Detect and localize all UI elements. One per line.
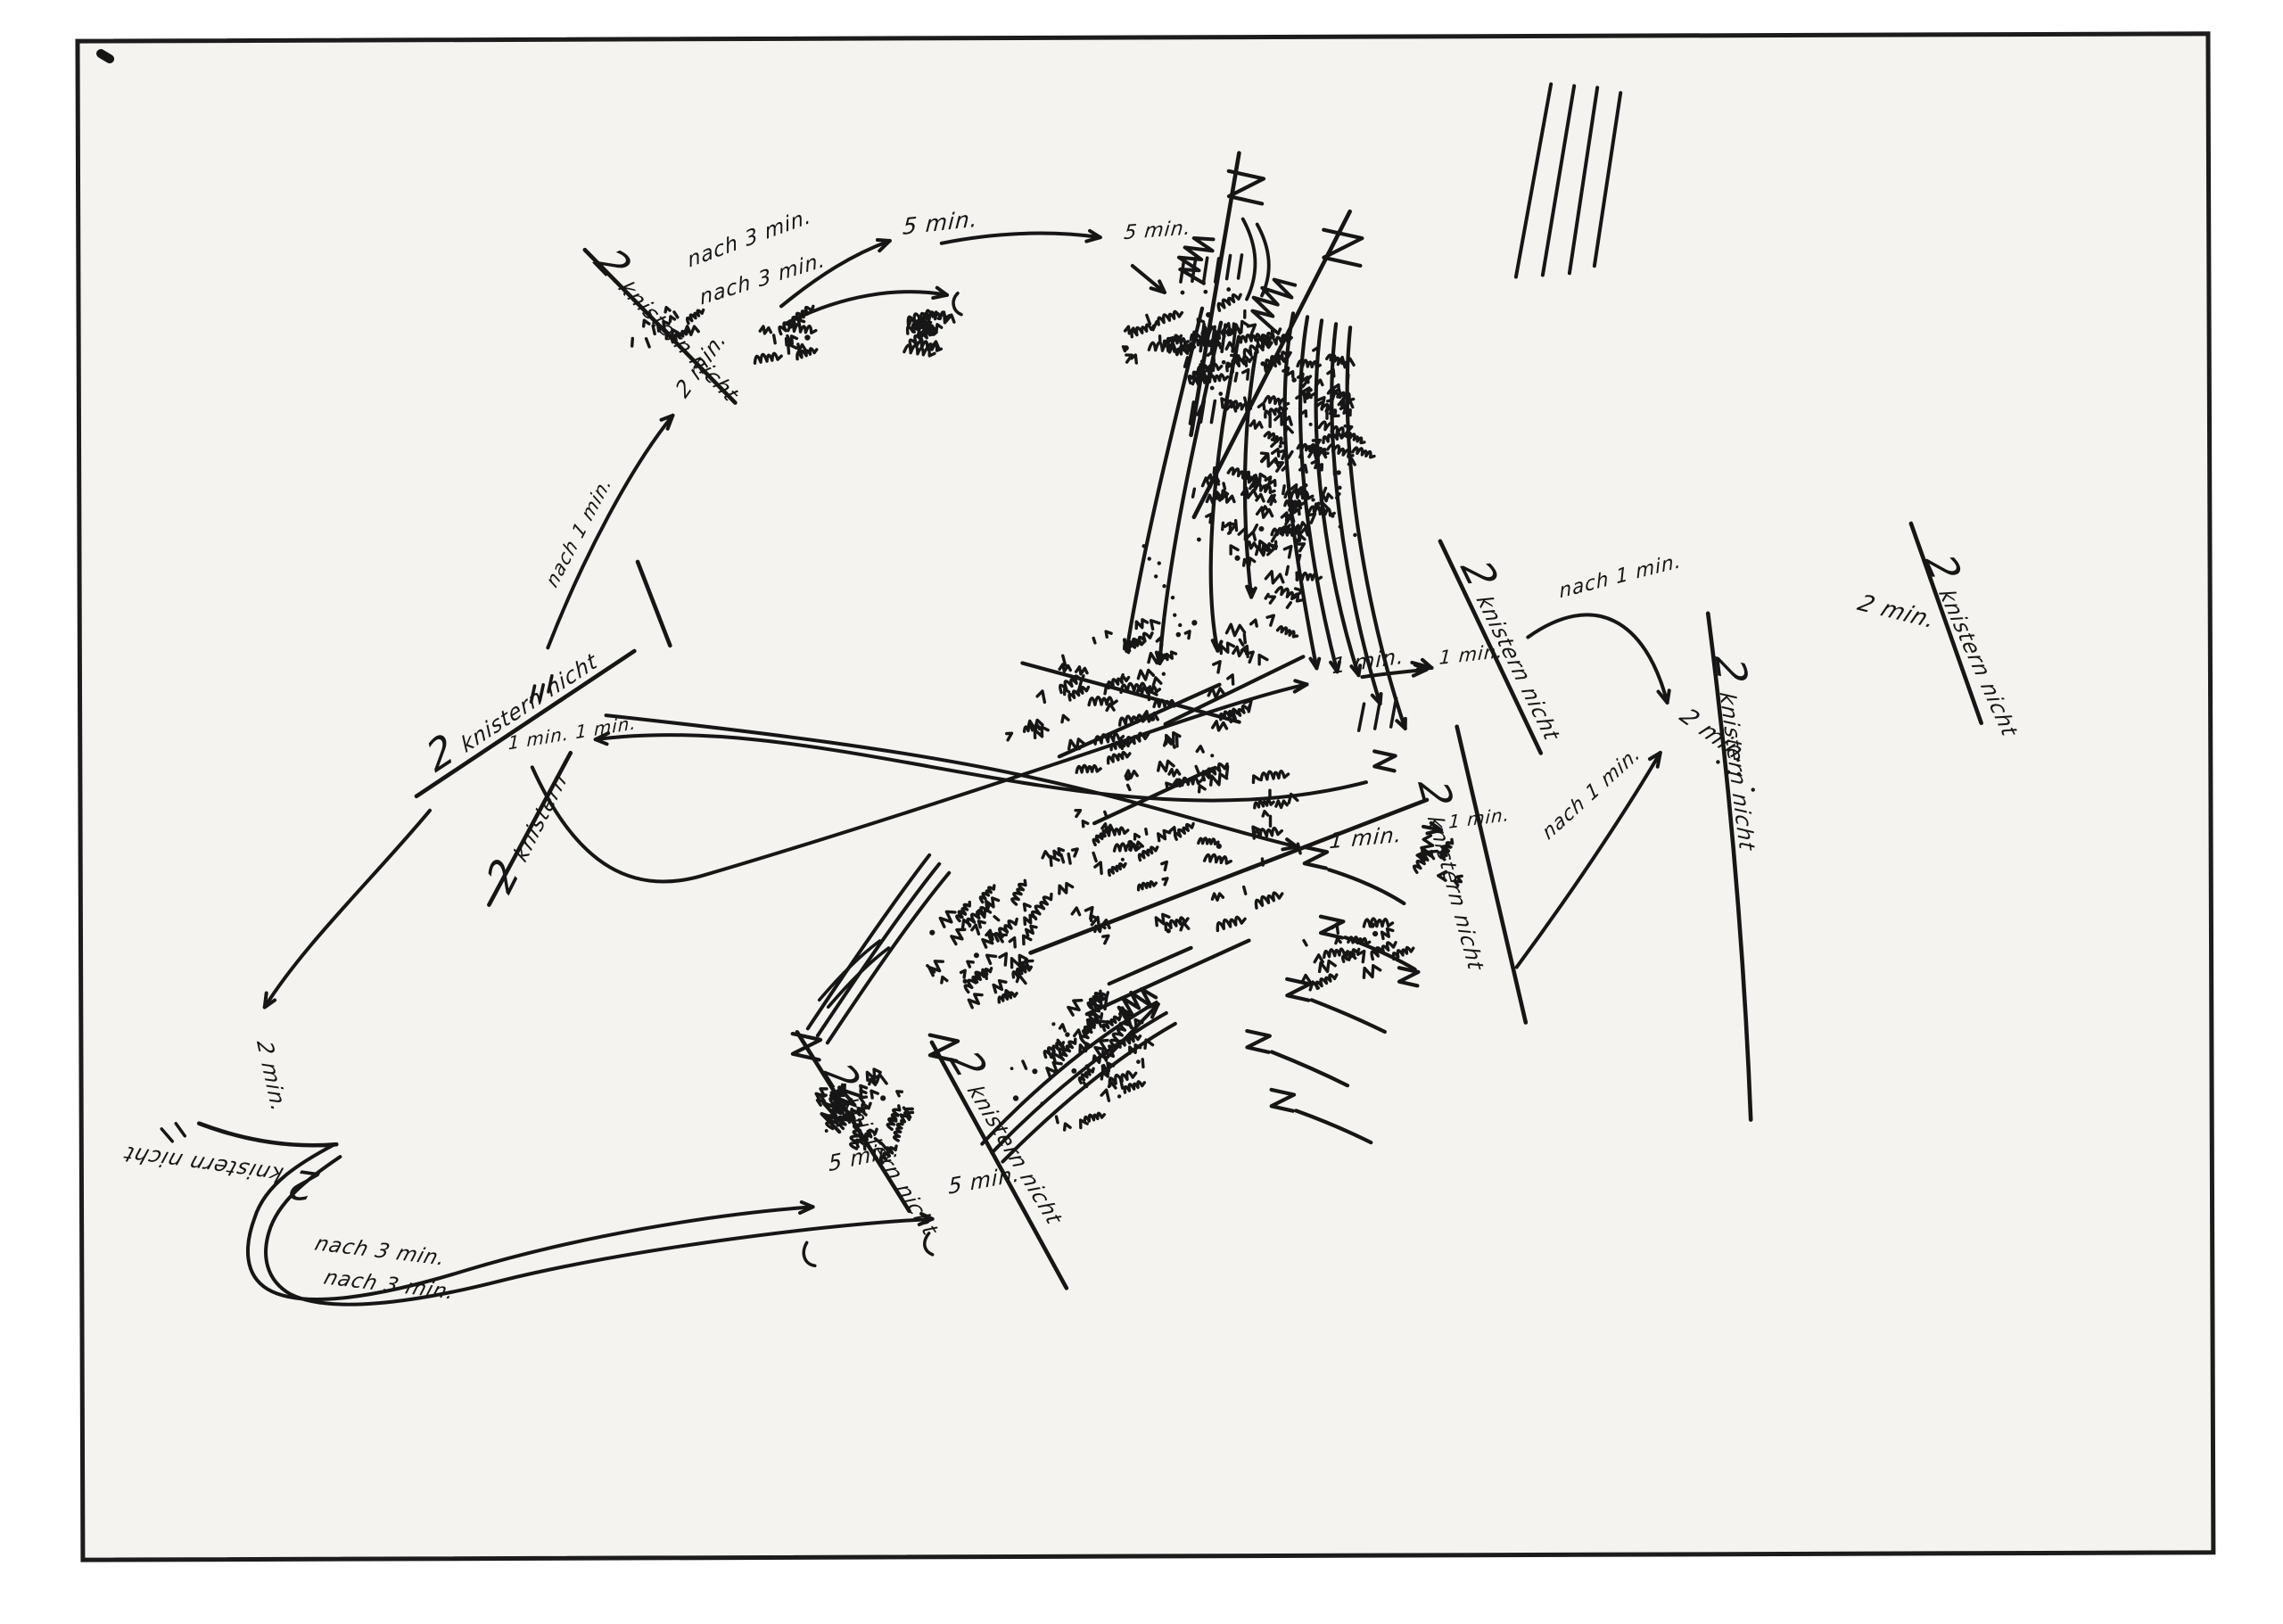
drawing-canvas: 2 knistern nicht2 knistern nicht2 kniste…	[0, 0, 2283, 1624]
ink-stroke	[101, 54, 110, 59]
artwork-photo: 2 knistern nicht2 knistern nicht2 kniste…	[0, 0, 2283, 1624]
artwork: 2 knistern nicht2 knistern nicht2 kniste…	[78, 34, 2213, 1560]
